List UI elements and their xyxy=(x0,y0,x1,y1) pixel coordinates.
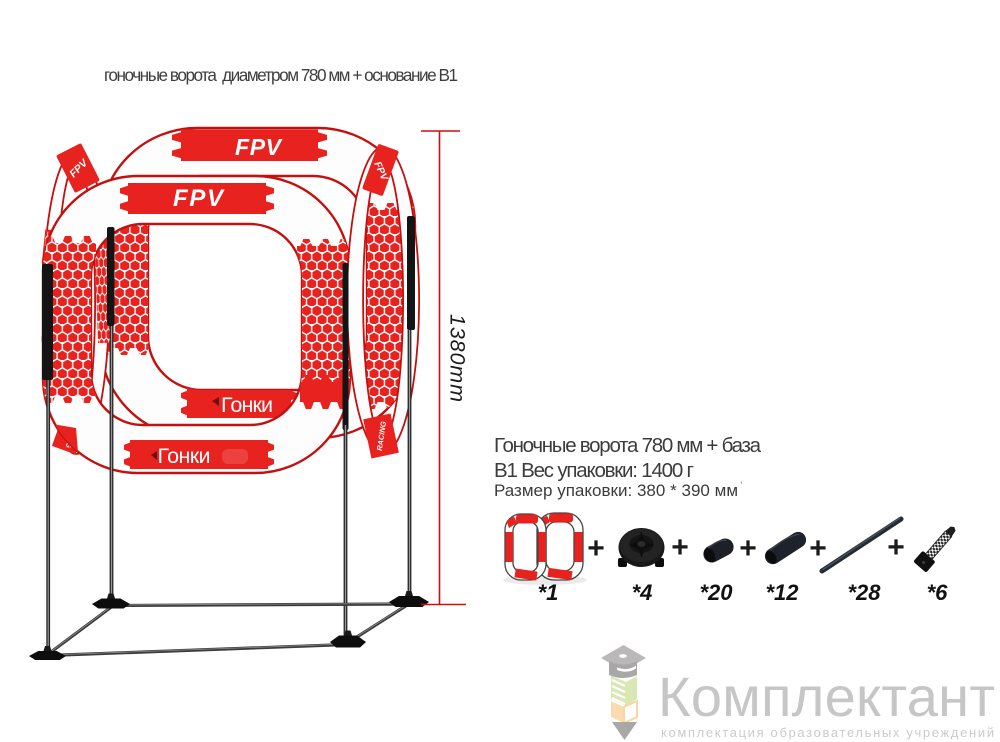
svg-text:*28: *28 xyxy=(847,580,881,605)
svg-text:Комплектант: Комплектант xyxy=(658,665,995,728)
svg-text:Гонки: Гонки xyxy=(158,444,211,468)
svg-text:Гоночные ворота 780 мм + база: Гоночные ворота 780 мм + база xyxy=(494,434,762,457)
svg-text:*1: *1 xyxy=(538,580,559,605)
svg-text:+: + xyxy=(809,532,827,565)
svg-text:FPV: FPV xyxy=(173,185,225,212)
svg-text:FPV: FPV xyxy=(235,134,283,160)
svg-text:+: + xyxy=(887,531,905,564)
svg-text:*12: *12 xyxy=(765,580,799,605)
svg-text:+: + xyxy=(587,532,605,565)
svg-text:Гонки: Гонки xyxy=(221,393,273,417)
svg-text:гоночные ворота диаметром 780: гоночные ворота диаметром 780 мм + основ… xyxy=(104,65,458,85)
svg-text:B1 Вес упаковки: 1400 г: B1 Вес упаковки: 1400 г xyxy=(494,459,694,482)
svg-text:+: + xyxy=(739,532,757,565)
svg-text:1380mm: 1380mm xyxy=(446,314,470,402)
svg-text:*6: *6 xyxy=(927,580,949,605)
svg-text:комплектация образовательных у: комплектация образовательных учреждений xyxy=(661,725,994,740)
svg-text:Размер упаковки: 380 * 390 мм: Размер упаковки: 380 * 390 мм xyxy=(494,481,738,500)
svg-text:*20: *20 xyxy=(699,580,733,605)
svg-text:+: + xyxy=(671,531,689,564)
svg-text:’: ’ xyxy=(740,479,743,493)
svg-text:*4: *4 xyxy=(632,580,653,605)
